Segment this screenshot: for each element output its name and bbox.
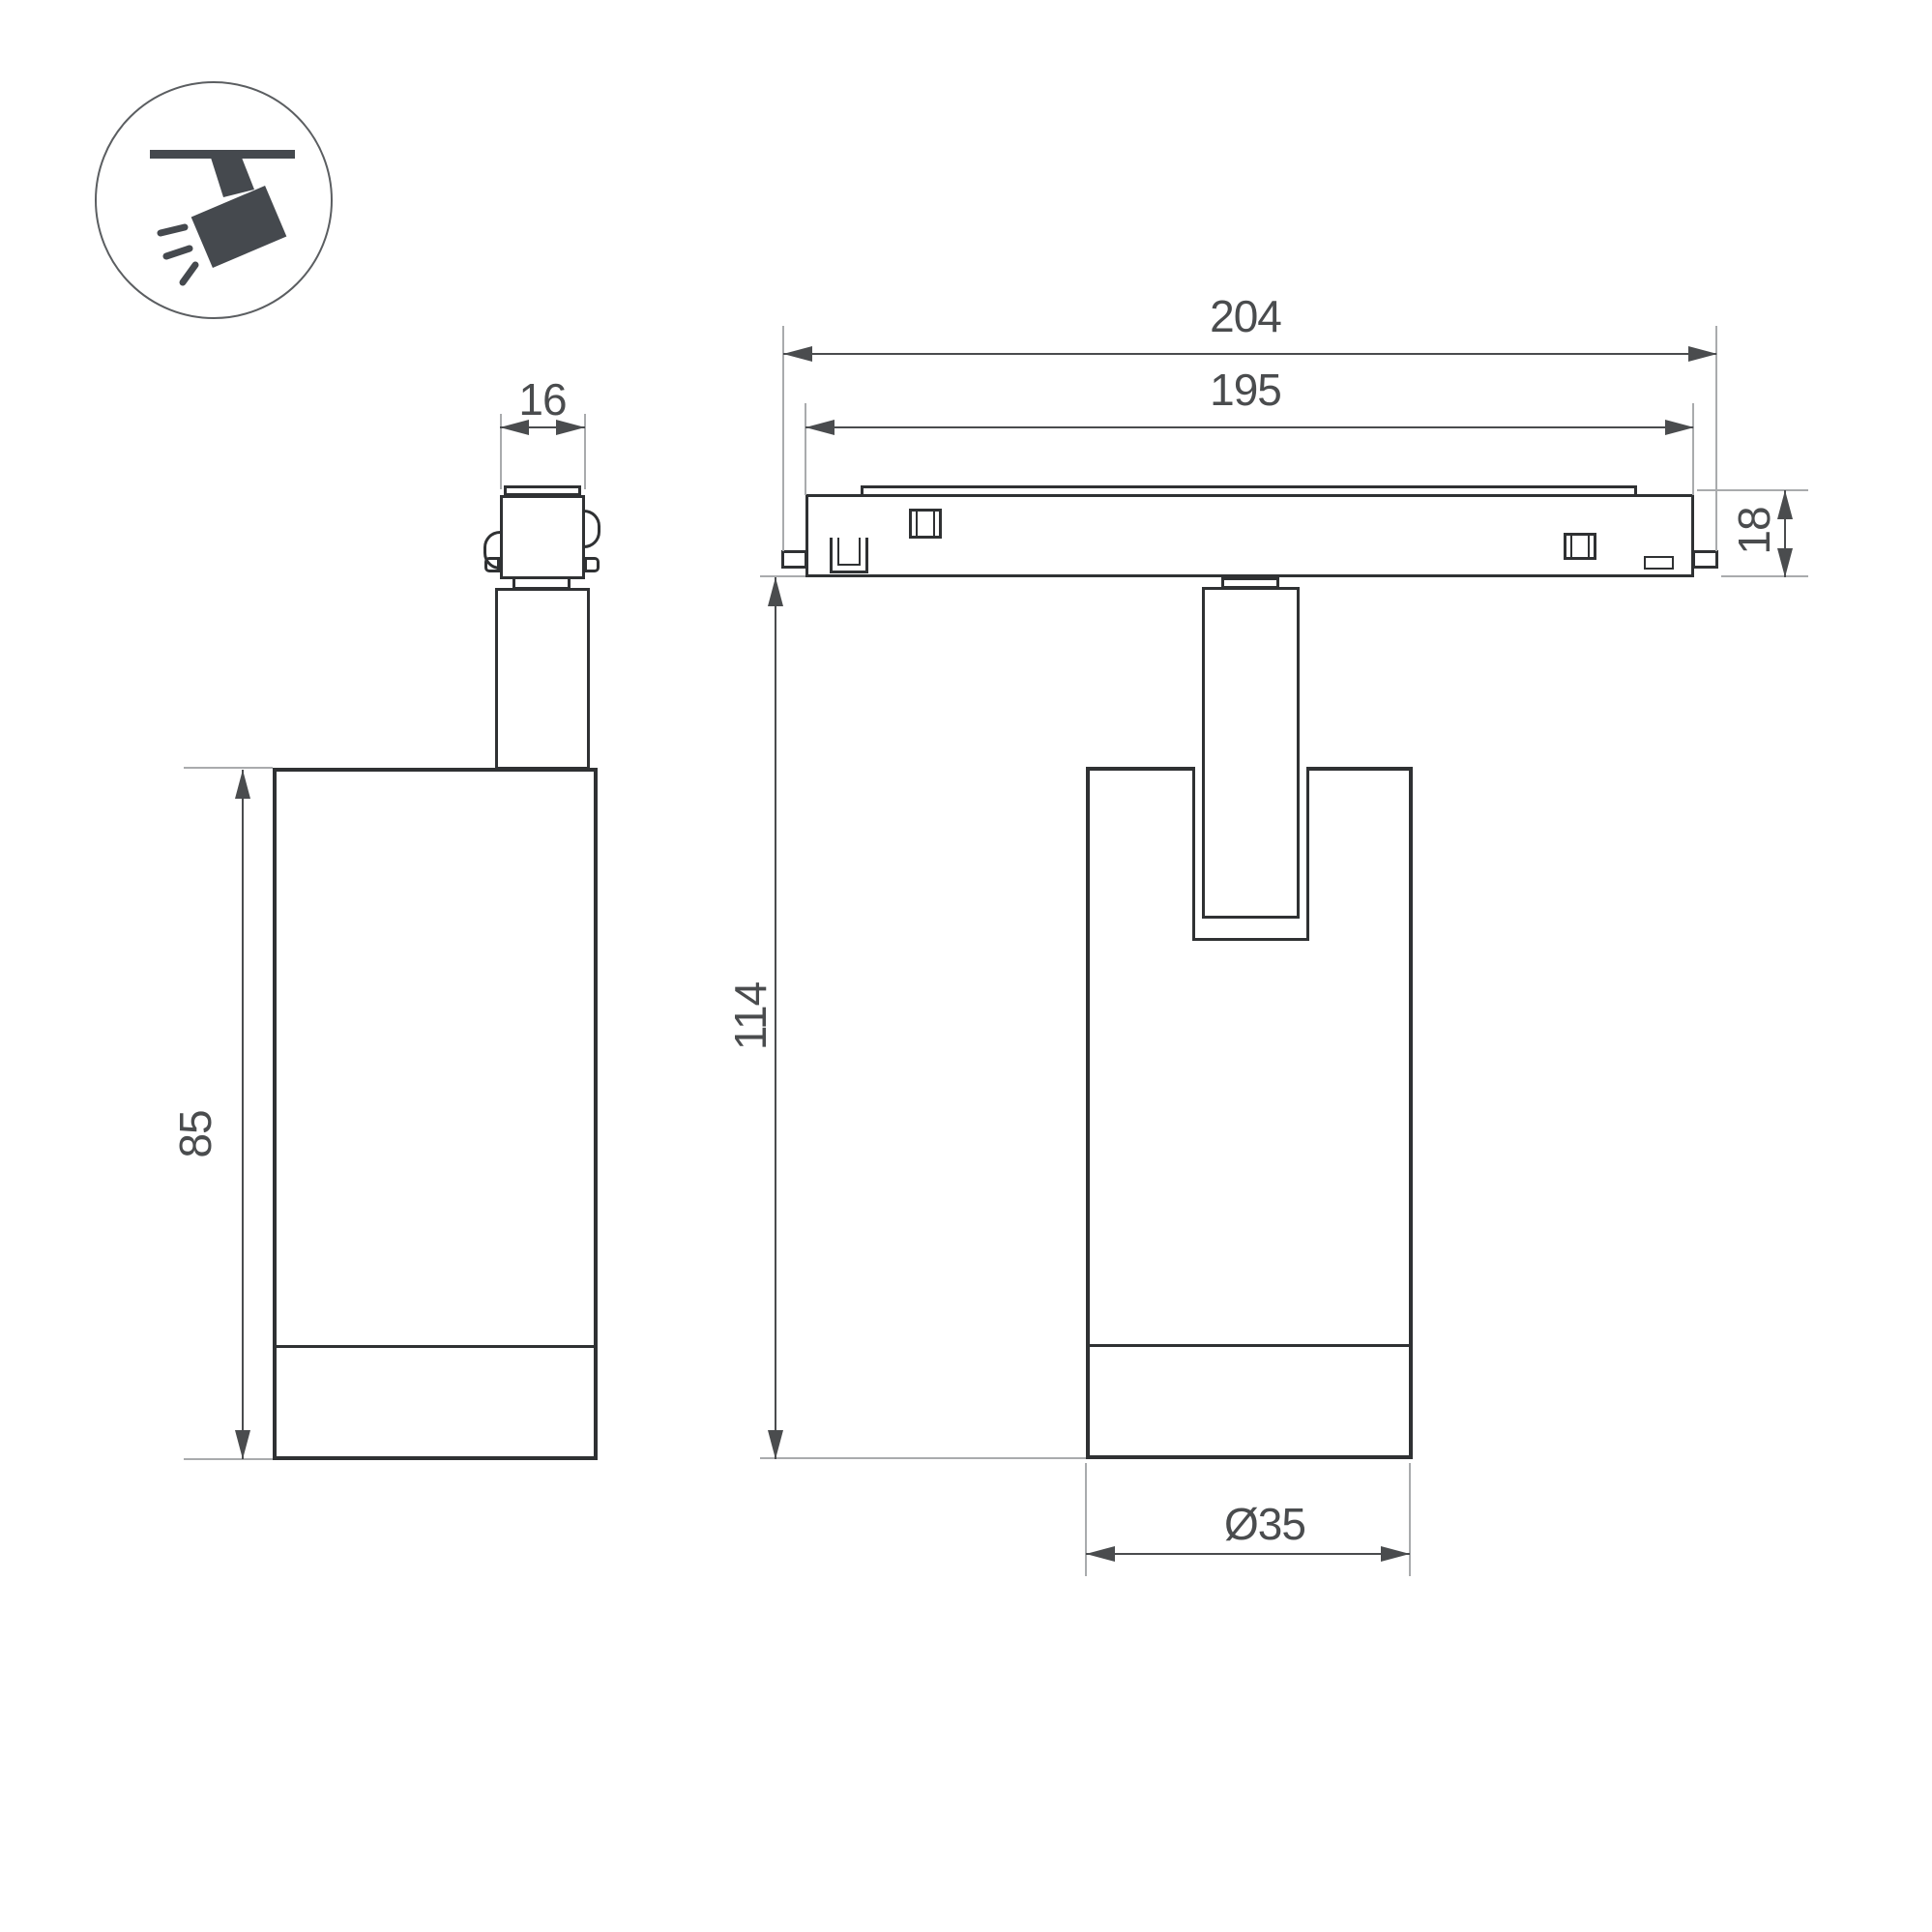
dim-label-track-overall-length: 204 — [1210, 290, 1281, 342]
track-contact-plate — [1644, 556, 1674, 570]
side-body — [273, 768, 598, 1460]
technical-drawing-canvas: 16 85 204 195 18 114 — [0, 0, 1932, 1932]
track-end-nub-left — [781, 550, 807, 569]
arrow-85-bottom — [235, 1430, 250, 1459]
track-end-nub-right — [1692, 550, 1718, 569]
arrow-204-left — [783, 346, 812, 362]
track-window-left-inner — [916, 512, 935, 536]
side-adapter-box — [500, 495, 585, 579]
front-stem-cap — [1221, 577, 1279, 589]
dim-label-adapter-width: 16 — [518, 373, 566, 425]
icon-circle — [96, 82, 332, 318]
arrow-204-right — [1688, 346, 1717, 362]
dim-label-track-height: 18 — [1728, 507, 1780, 554]
track-window-right — [1564, 533, 1596, 560]
ext-line-18-bottom — [1721, 575, 1808, 577]
dim-line-85 — [242, 770, 244, 1459]
dim-label-body-height: 85 — [169, 1110, 221, 1157]
ext-line-85-bottom — [184, 1458, 273, 1460]
ext-line-195-right — [1692, 403, 1694, 495]
arrow-35-left — [1086, 1546, 1115, 1562]
ext-line-195-left — [805, 403, 806, 495]
ext-line-85-top — [184, 767, 273, 769]
side-adapter-tab-left — [484, 557, 500, 572]
arrow-35-right — [1381, 1546, 1410, 1562]
arrow-195-left — [805, 420, 834, 435]
arrow-114-bottom — [768, 1430, 783, 1459]
dim-line-195 — [805, 426, 1693, 428]
dim-label-overall-height: 114 — [724, 982, 776, 1050]
side-stem — [495, 588, 590, 770]
track-spotlight-icon — [92, 77, 343, 329]
arrow-114-top — [768, 577, 783, 606]
arrow-85-top — [235, 770, 250, 799]
side-adapter-tab-right — [584, 557, 600, 572]
front-stem — [1202, 587, 1300, 919]
arrow-195-right — [1665, 420, 1694, 435]
icon-track-bar — [150, 150, 295, 159]
ext-line-114-bottom — [760, 1457, 1086, 1459]
dim-label-track-body-length: 195 — [1210, 364, 1281, 416]
front-body-divider-line — [1089, 1344, 1410, 1347]
dim-line-35 — [1086, 1553, 1410, 1555]
side-adapter-clip-right — [584, 510, 600, 548]
track-window-left — [909, 509, 942, 539]
side-body-divider-line — [276, 1345, 595, 1348]
dim-line-204 — [783, 353, 1716, 355]
track-u-clip-inner — [837, 538, 861, 566]
dim-label-body-diameter: Ø35 — [1224, 1498, 1305, 1550]
track-window-right-inner — [1570, 536, 1590, 557]
